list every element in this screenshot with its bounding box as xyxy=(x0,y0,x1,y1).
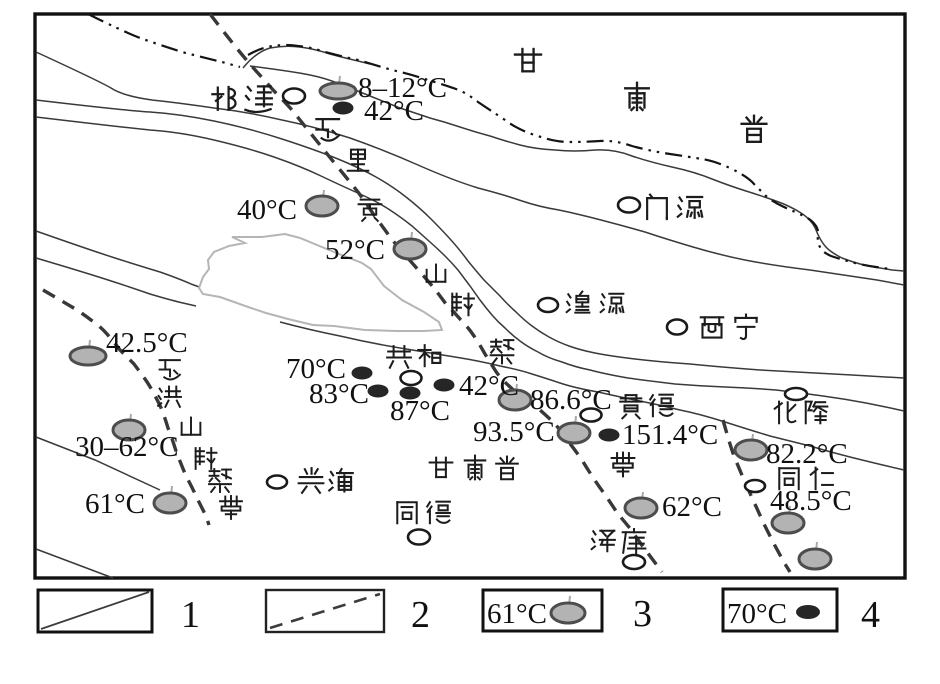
svg-text:2: 2 xyxy=(411,594,430,636)
svg-text:70°C: 70°C xyxy=(727,598,787,630)
svg-text:48.5°C: 48.5°C xyxy=(770,485,852,517)
svg-text:3: 3 xyxy=(633,593,652,635)
svg-text:4: 4 xyxy=(861,594,880,636)
svg-text:151.4°C: 151.4°C xyxy=(622,419,718,451)
svg-text:61°C: 61°C xyxy=(487,598,547,630)
svg-text:42.5°C: 42.5°C xyxy=(106,327,188,359)
svg-text:61°C: 61°C xyxy=(85,488,145,520)
svg-text:93.5°C: 93.5°C xyxy=(473,416,555,448)
svg-text:1: 1 xyxy=(181,594,200,636)
svg-text:30–62°C: 30–62°C xyxy=(75,431,178,463)
svg-text:87°C: 87°C xyxy=(390,395,450,427)
svg-text:42°C: 42°C xyxy=(459,370,519,402)
svg-text:62°C: 62°C xyxy=(662,491,722,523)
svg-text:86.6°C: 86.6°C xyxy=(530,384,612,416)
svg-text:40°C: 40°C xyxy=(237,194,297,226)
svg-text:82.2°C: 82.2°C xyxy=(766,438,848,470)
svg-text:42°C: 42°C xyxy=(364,95,424,127)
svg-text:52°C: 52°C xyxy=(325,234,385,266)
svg-text:83°C: 83°C xyxy=(309,378,369,410)
